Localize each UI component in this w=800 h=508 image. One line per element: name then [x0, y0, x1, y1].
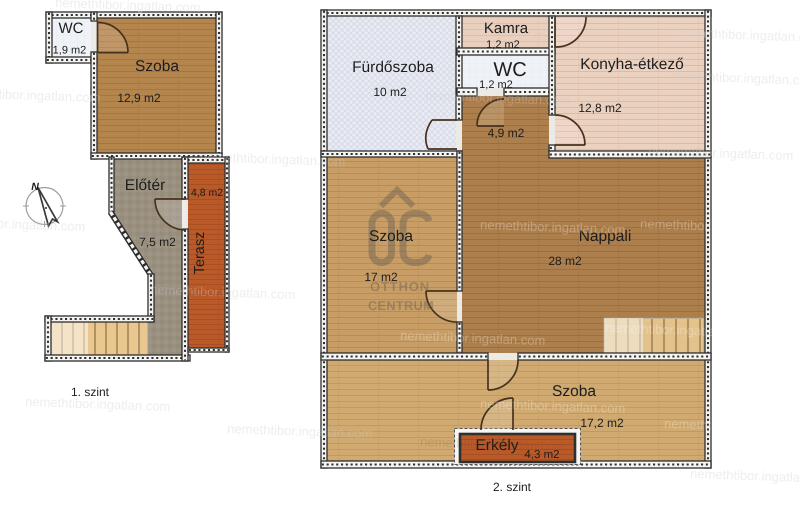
- svg-text:28 m2: 28 m2: [548, 254, 582, 268]
- svg-text:10 m2: 10 m2: [373, 85, 407, 99]
- svg-text:12,9 m2: 12,9 m2: [117, 91, 161, 105]
- svg-text:WC: WC: [59, 20, 84, 37]
- svg-text:2. szint: 2. szint: [493, 480, 532, 494]
- svg-text:12,8 m2: 12,8 m2: [578, 101, 622, 115]
- svg-text:1,2 m2: 1,2 m2: [486, 39, 520, 51]
- svg-text:nemethtibor.ingatlan.com: nemethtibor.ingatlan.com: [25, 394, 171, 414]
- svg-text:1,9 m2: 1,9 m2: [53, 45, 87, 57]
- svg-text:N: N: [31, 181, 39, 193]
- svg-text:WC: WC: [493, 59, 526, 81]
- svg-text:CENTRUM: CENTRUM: [368, 298, 434, 313]
- svg-text:4,8 m2: 4,8 m2: [191, 187, 223, 199]
- svg-text:Szoba: Szoba: [552, 383, 596, 400]
- svg-text:17 m2: 17 m2: [364, 270, 398, 284]
- svg-text:nemethtibor.ingatlan.com: nemethtibor.ingatlan.com: [0, 85, 101, 105]
- svg-text:Kamra: Kamra: [484, 20, 529, 37]
- svg-text:17,2 m2: 17,2 m2: [580, 416, 624, 430]
- svg-text:Szoba: Szoba: [369, 228, 413, 245]
- svg-text:nemethtibor.ingatlan.com: nemethtibor.ingatlan.com: [0, 214, 86, 234]
- svg-text:Szoba: Szoba: [135, 58, 179, 75]
- svg-text:Terasz: Terasz: [192, 232, 208, 275]
- svg-text:Előtér: Előtér: [125, 177, 166, 194]
- svg-text:4,9 m2: 4,9 m2: [488, 126, 525, 140]
- svg-text:Fürdőszoba: Fürdőszoba: [352, 59, 434, 76]
- svg-text:Konyha-étkező: Konyha-étkező: [580, 56, 683, 73]
- svg-text:7,5 m2: 7,5 m2: [139, 235, 176, 249]
- svg-text:nemethtibor.ingatlan.com: nemethtibor.ingatlan.com: [690, 466, 800, 486]
